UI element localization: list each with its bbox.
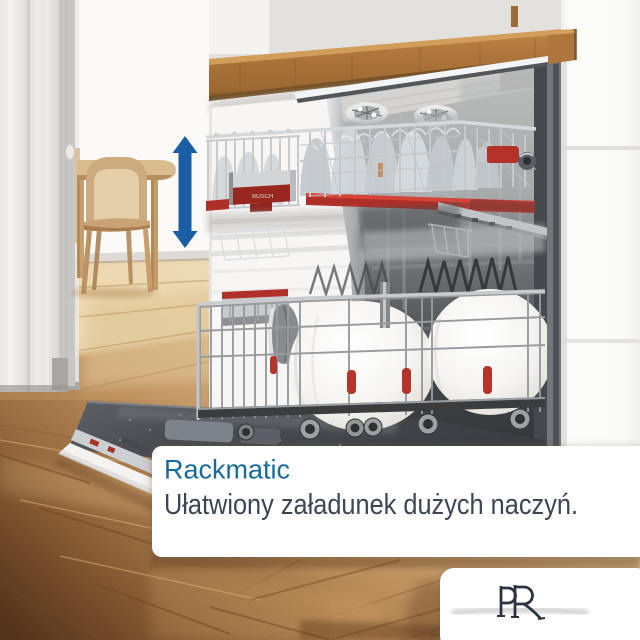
- svg-text:Ułatwiony załadunek dużych nac: Ułatwiony załadunek dużych naczyń.: [164, 489, 578, 521]
- svg-text:Rackmatic: Rackmatic: [164, 455, 290, 485]
- svg-text:BOSCH: BOSCH: [252, 194, 273, 200]
